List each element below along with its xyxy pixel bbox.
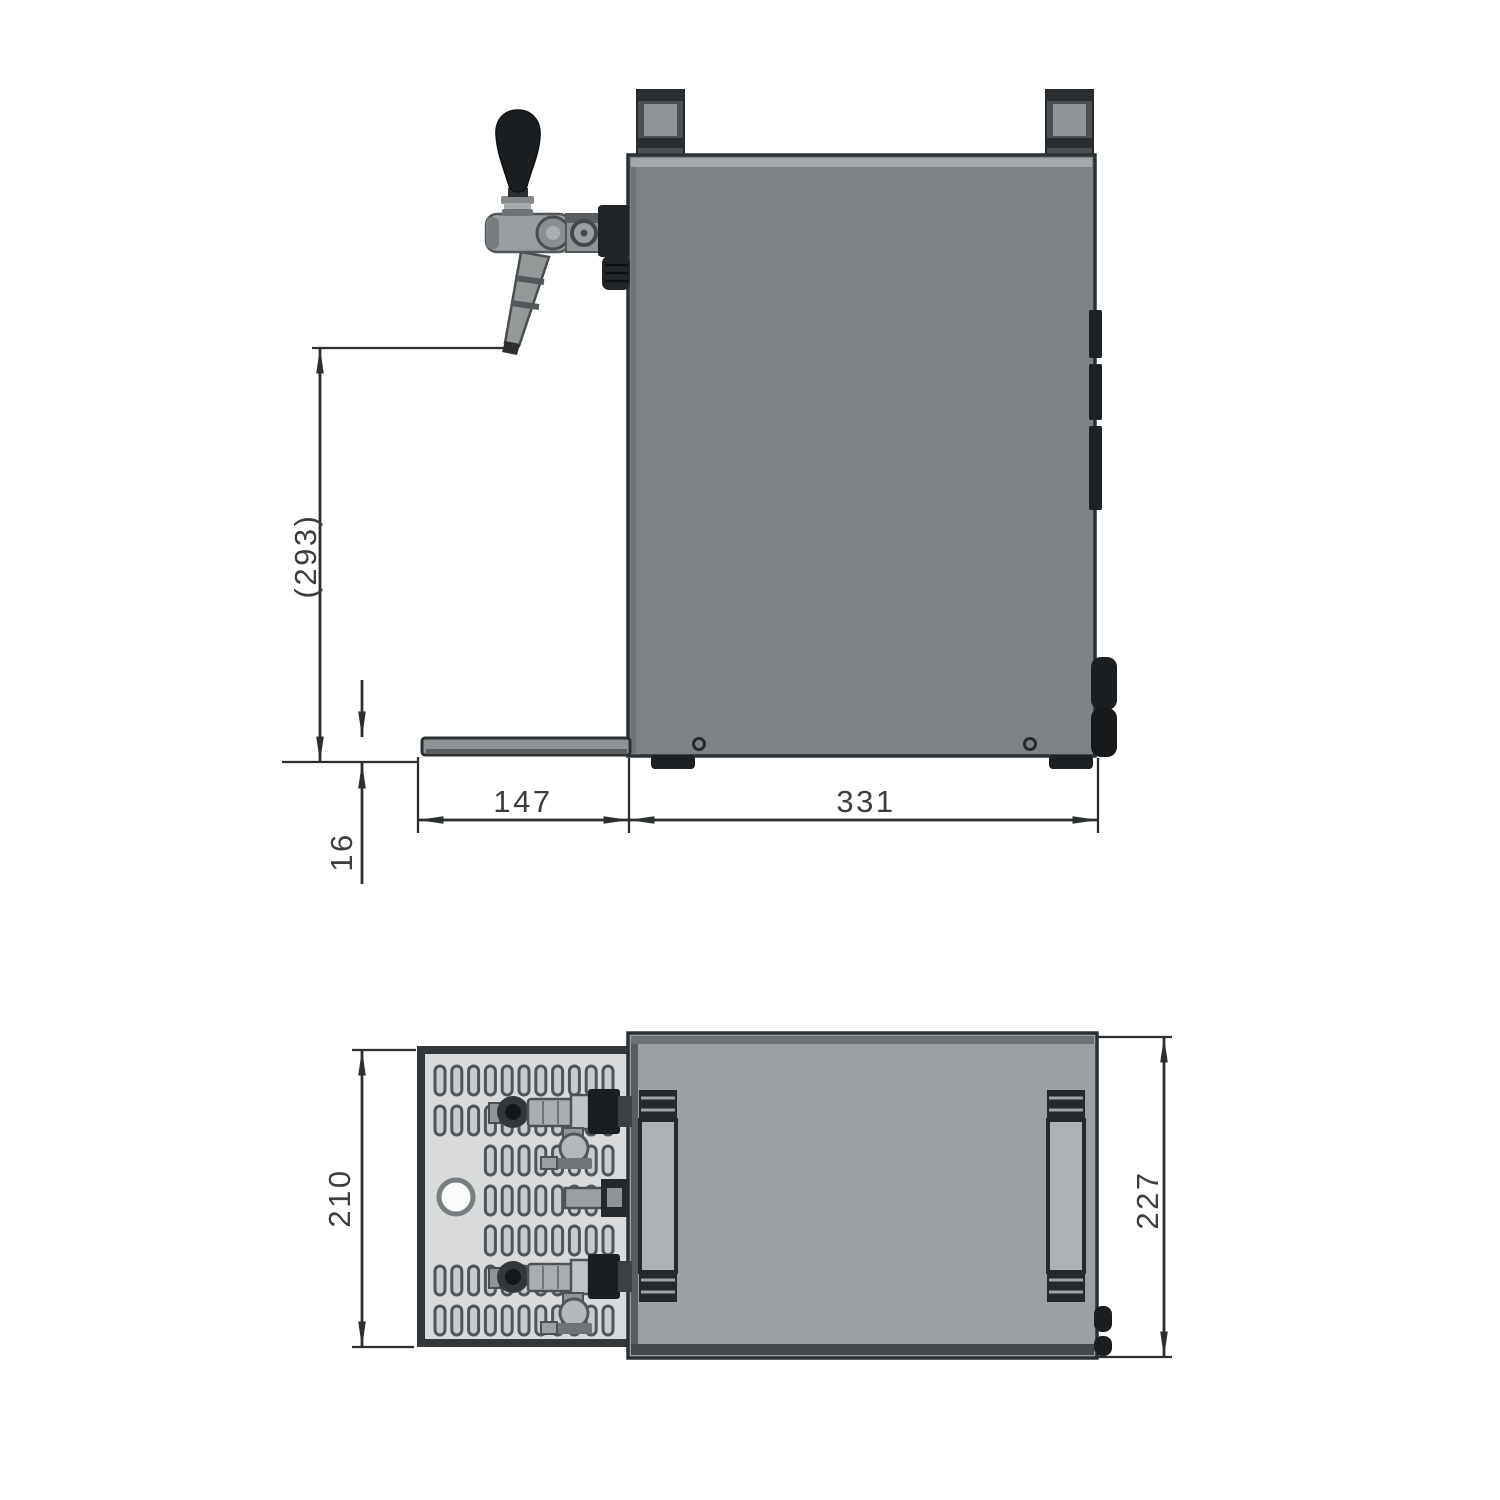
tray-slot — [452, 1106, 462, 1135]
tray-slot — [519, 1186, 529, 1215]
tray-slot — [485, 1226, 495, 1255]
tray-slot — [452, 1266, 462, 1295]
tray-slot — [569, 1066, 579, 1095]
tray-slot — [485, 1146, 495, 1175]
tray-slot — [586, 1226, 596, 1255]
foot-right — [1049, 755, 1093, 769]
faucet-spout — [505, 252, 549, 346]
tray-slot — [536, 1186, 546, 1215]
tray-slot — [469, 1266, 479, 1295]
tray-slot — [536, 1066, 546, 1095]
dim-147: 147 — [418, 757, 629, 833]
dim-label-293: (293) — [288, 514, 323, 599]
tray-slot — [469, 1306, 479, 1335]
tray-slot — [502, 1226, 512, 1255]
faucet-shank — [598, 205, 629, 257]
cabinet-side — [628, 155, 1095, 756]
front-knob — [602, 256, 630, 290]
tray-slot — [435, 1306, 445, 1335]
tray-slot — [485, 1186, 495, 1215]
tray-slot — [553, 1066, 563, 1095]
tray-slot — [502, 1306, 512, 1335]
handle-post-right — [1046, 90, 1093, 157]
tray-slot — [553, 1226, 563, 1255]
tray-slot — [519, 1306, 529, 1335]
tray-slot — [519, 1226, 529, 1255]
tray-slot — [553, 1186, 563, 1215]
top-view — [421, 1033, 1112, 1358]
tap-faucet — [486, 110, 629, 355]
carry-handle-left — [639, 1090, 677, 1302]
tray-slot — [435, 1066, 445, 1095]
dim-210: 210 — [322, 1050, 416, 1347]
tray-slot — [469, 1066, 479, 1095]
tray-slot — [603, 1146, 613, 1175]
side-view — [422, 90, 1117, 769]
cabinet-top — [628, 1033, 1097, 1358]
screw-right — [1025, 739, 1036, 750]
drawing-canvas: (293) 16 147 331 — [0, 0, 1500, 1500]
carry-handle-right — [1047, 1090, 1085, 1302]
tray-slot — [603, 1226, 613, 1255]
drip-tray-side — [422, 738, 630, 755]
rear-hinge-strips — [1089, 310, 1102, 510]
dim-label-210: 210 — [322, 1168, 357, 1227]
foot-left — [651, 755, 695, 769]
dim-293: (293) — [282, 348, 512, 762]
tray-slot — [435, 1106, 445, 1135]
tray-slot — [502, 1186, 512, 1215]
screw-left — [694, 739, 705, 750]
dim-label-16: 16 — [324, 832, 359, 871]
tray-slot — [469, 1106, 479, 1135]
handle-collar — [501, 196, 534, 204]
dim-label-147: 147 — [493, 784, 552, 819]
handle-post-left — [637, 90, 684, 157]
tray-slot — [536, 1226, 546, 1255]
tray-slot — [452, 1306, 462, 1335]
dim-331: 331 — [629, 758, 1098, 833]
tray-slot — [435, 1266, 445, 1295]
rear-knobs — [1091, 657, 1117, 757]
tray-slot — [485, 1066, 495, 1095]
tray-slot — [502, 1066, 512, 1095]
tray-slot — [519, 1066, 529, 1095]
tap-handle — [496, 110, 540, 192]
tray-slot — [452, 1066, 462, 1095]
tray-drain-hole — [439, 1180, 473, 1214]
dim-16: 16 — [324, 680, 362, 884]
tray-slot — [485, 1306, 495, 1335]
tray-slot — [519, 1146, 529, 1175]
tray-slot — [603, 1306, 613, 1335]
dim-label-331: 331 — [836, 784, 895, 819]
tray-slot — [502, 1146, 512, 1175]
technical-drawing: (293) 16 147 331 — [0, 0, 1500, 1500]
tray-slot — [569, 1226, 579, 1255]
dim-label-227: 227 — [1130, 1170, 1165, 1229]
